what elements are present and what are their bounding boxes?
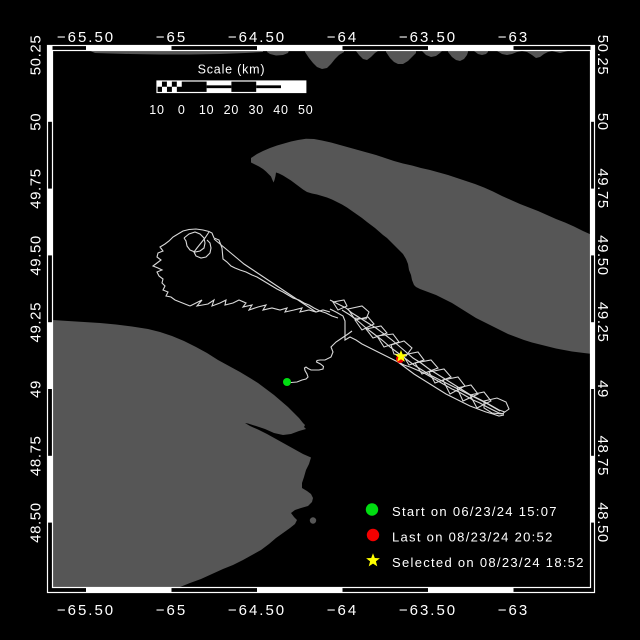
svg-text:10: 10: [199, 103, 215, 117]
svg-text:40: 40: [273, 103, 289, 117]
svg-text:−63: −63: [498, 602, 529, 619]
svg-text:30: 30: [248, 103, 264, 117]
svg-text:49.25: 49.25: [28, 302, 45, 343]
svg-text:−63: −63: [498, 29, 529, 46]
svg-text:−65: −65: [156, 602, 187, 619]
svg-text:20: 20: [224, 103, 240, 117]
svg-text:Selected on 08/23/24 18:52: Selected on 08/23/24 18:52: [392, 555, 585, 570]
svg-text:−64.50: −64.50: [228, 602, 286, 619]
svg-text:48.75: 48.75: [594, 436, 611, 477]
svg-text:50.25: 50.25: [594, 35, 611, 76]
svg-text:50: 50: [28, 113, 45, 131]
svg-text:−63.50: −63.50: [399, 29, 457, 46]
svg-text:Start on 06/23/24 15:07: Start on 06/23/24 15:07: [392, 504, 558, 519]
svg-text:49.50: 49.50: [594, 235, 611, 276]
svg-text:−65.50: −65.50: [57, 602, 115, 619]
svg-text:Scale (km): Scale (km): [198, 63, 266, 77]
svg-text:−65.50: −65.50: [57, 29, 115, 46]
svg-text:−63.50: −63.50: [399, 602, 457, 619]
svg-text:Last on 08/23/24 20:52: Last on 08/23/24 20:52: [392, 530, 554, 545]
svg-text:49.75: 49.75: [28, 168, 45, 209]
svg-text:50: 50: [594, 113, 611, 131]
svg-text:10: 10: [149, 103, 165, 117]
svg-text:−64.50: −64.50: [228, 29, 286, 46]
svg-text:−64: −64: [327, 29, 358, 46]
svg-text:49: 49: [28, 380, 45, 398]
svg-text:48.50: 48.50: [594, 502, 611, 543]
svg-text:48.50: 48.50: [28, 502, 45, 543]
svg-text:50.25: 50.25: [28, 35, 45, 76]
svg-text:−65: −65: [156, 29, 187, 46]
svg-text:0: 0: [178, 103, 186, 117]
svg-text:50: 50: [298, 103, 314, 117]
svg-text:49: 49: [594, 380, 611, 398]
svg-text:48.75: 48.75: [28, 436, 45, 477]
svg-text:49.50: 49.50: [28, 235, 45, 276]
svg-text:49.75: 49.75: [594, 168, 611, 209]
svg-text:49.25: 49.25: [594, 302, 611, 343]
svg-text:−64: −64: [327, 602, 358, 619]
